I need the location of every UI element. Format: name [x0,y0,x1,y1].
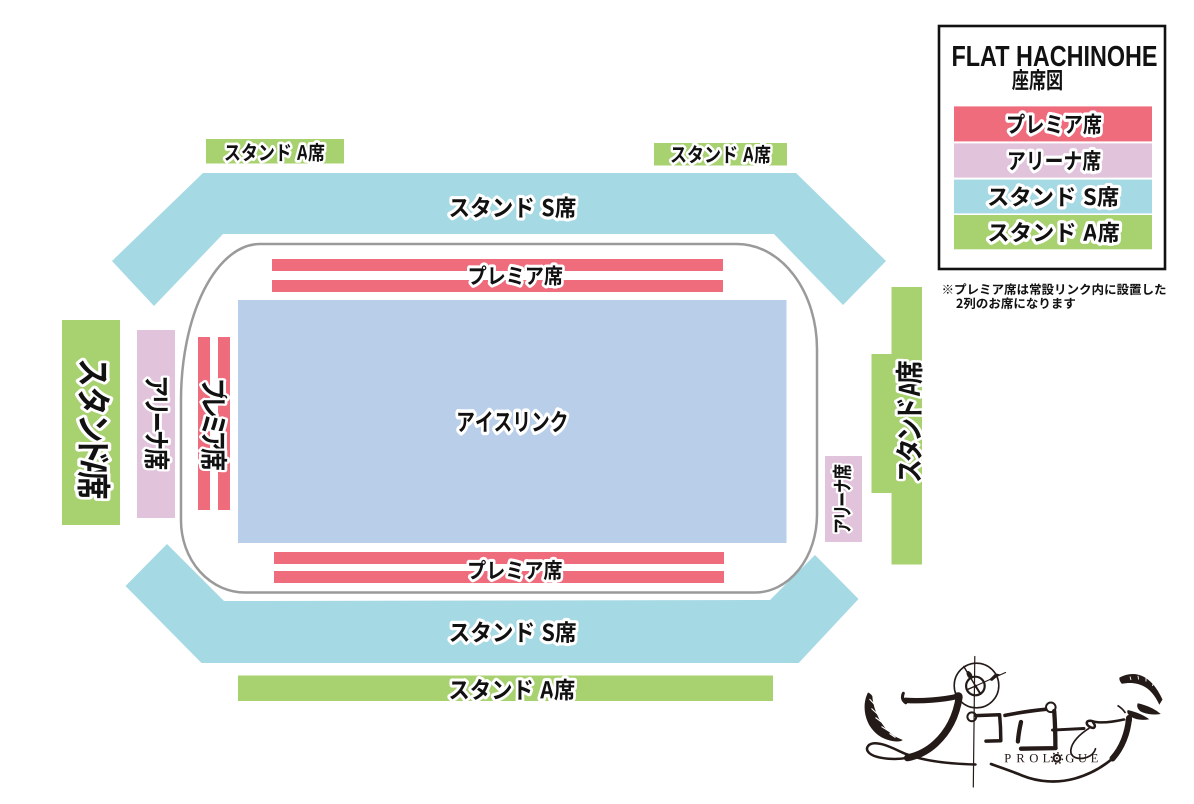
svg-text:FLAT HACHINOHE: FLAT HACHINOHE [952,41,1158,73]
